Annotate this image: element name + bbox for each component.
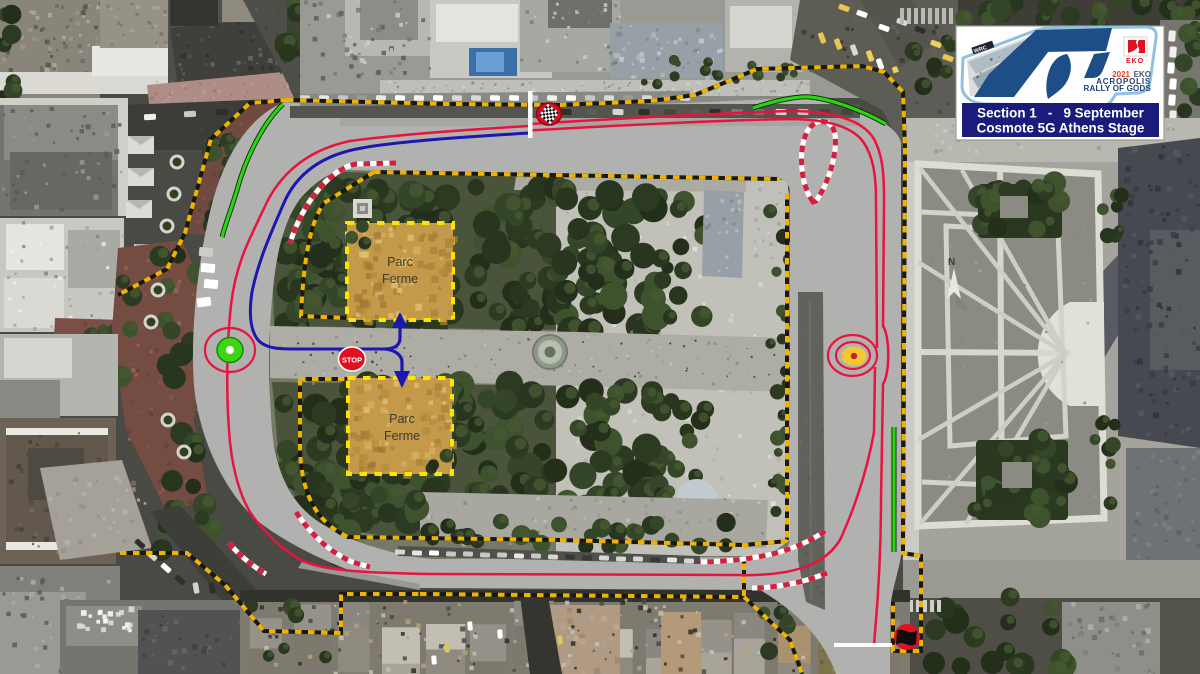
svg-text:Parc: Parc xyxy=(387,255,413,269)
svg-text:RALLY OF GODS: RALLY OF GODS xyxy=(1084,84,1152,93)
svg-text:Parc: Parc xyxy=(389,412,415,426)
svg-text:Cosmote 5G Athens Stage: Cosmote 5G Athens Stage xyxy=(977,121,1145,136)
svg-text:Ferme: Ferme xyxy=(382,272,418,286)
svg-text:Section 1 - 9 September: Section 1 - 9 September xyxy=(977,106,1144,121)
svg-text:EKO: EKO xyxy=(1126,58,1144,65)
svg-text:Ferme: Ferme xyxy=(384,429,420,443)
svg-text:STOP: STOP xyxy=(342,356,362,365)
svg-text:N: N xyxy=(948,257,955,268)
